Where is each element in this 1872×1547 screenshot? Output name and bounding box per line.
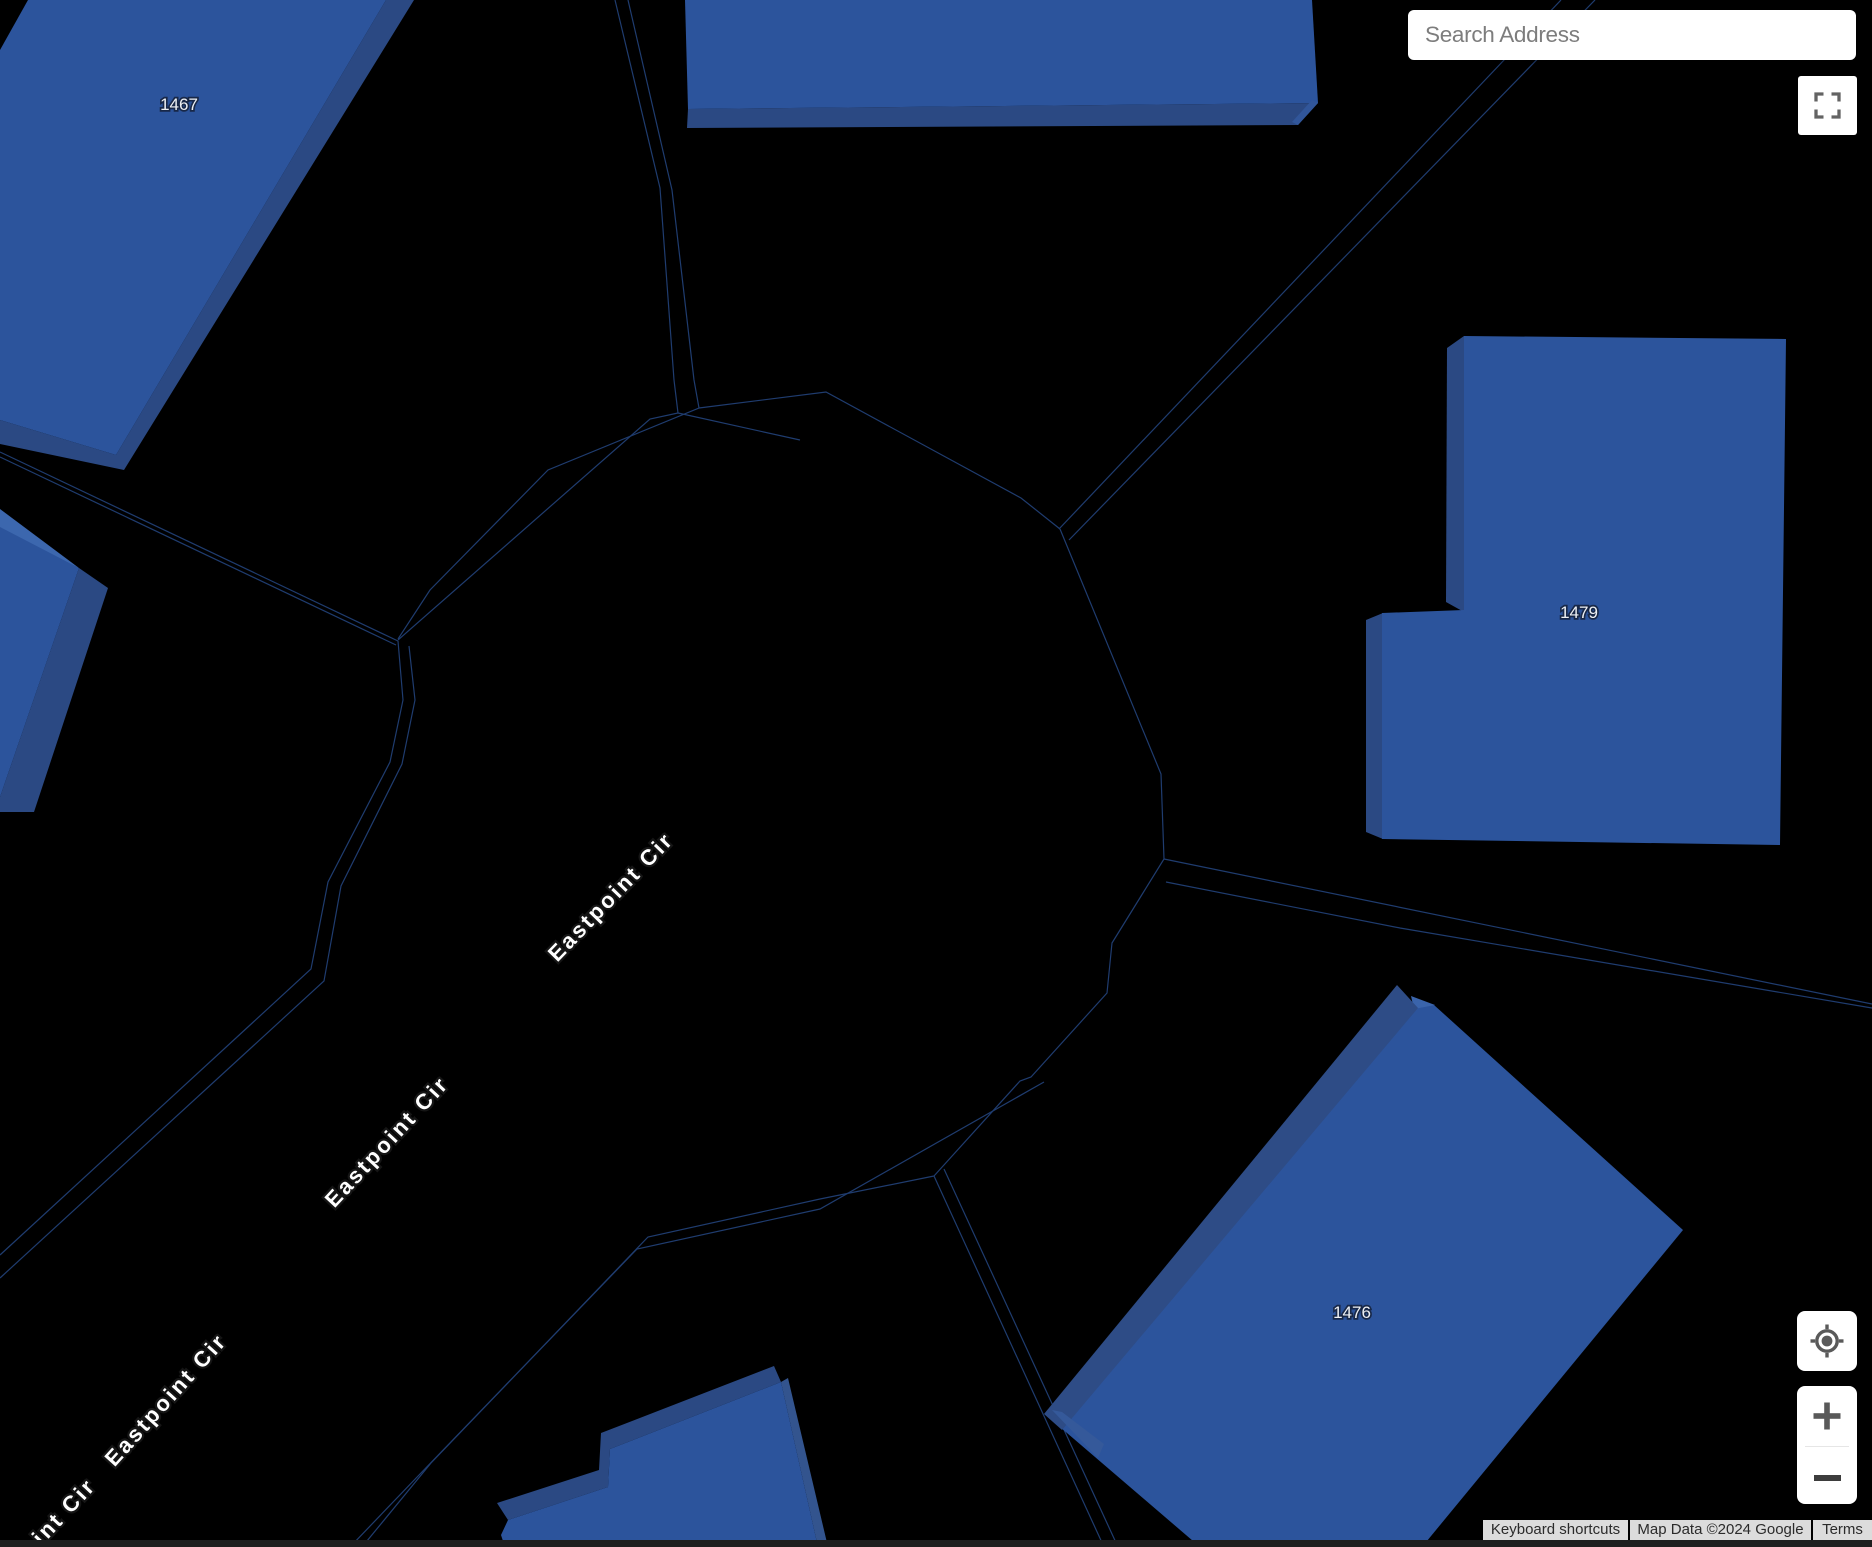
svg-text:1476: 1476 bbox=[1333, 1303, 1371, 1322]
svg-text:1479: 1479 bbox=[1560, 603, 1598, 622]
svg-text:1467: 1467 bbox=[160, 95, 198, 114]
